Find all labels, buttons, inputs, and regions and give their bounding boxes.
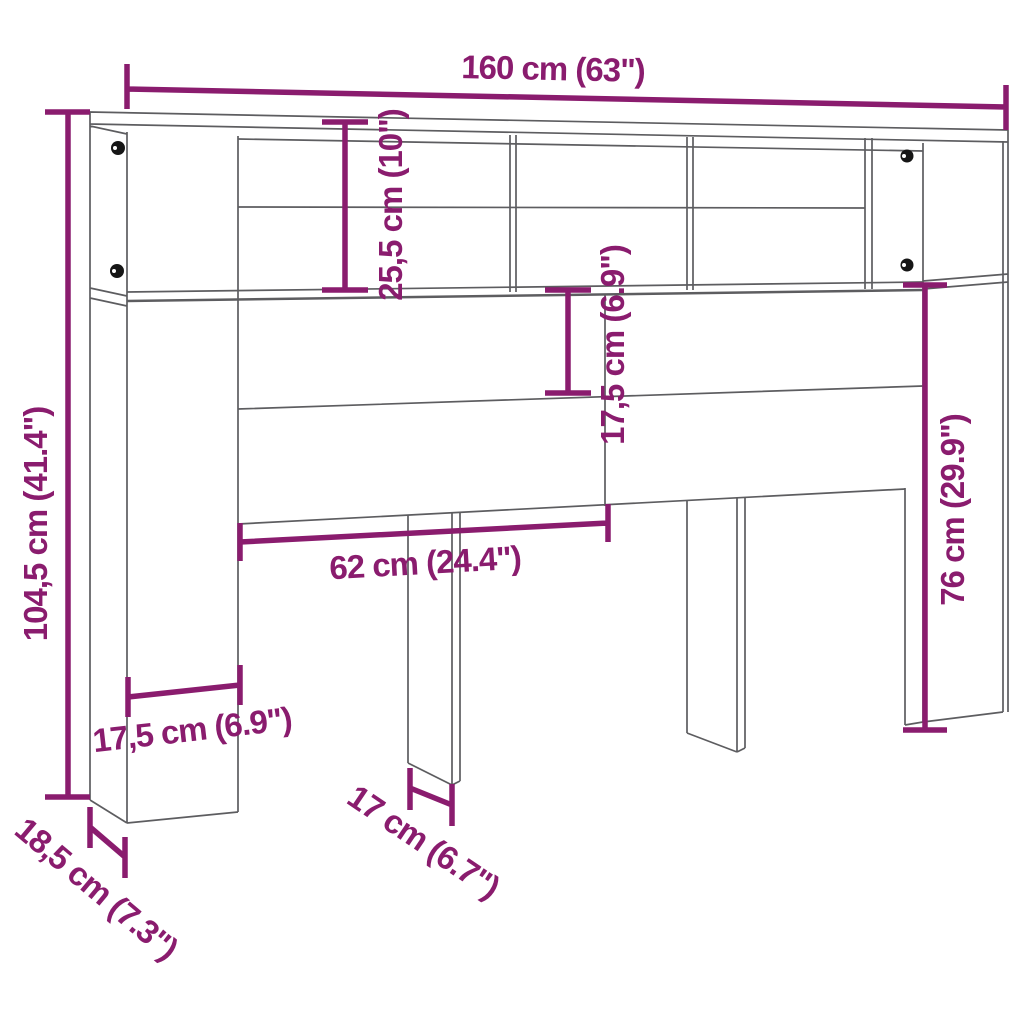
dim-top-compartment-height: 25,5 cm (10") bbox=[322, 109, 409, 301]
dimension-annotations: 160 cm (63") 104,5 cm (41.4") 25,5 cm (1… bbox=[8, 48, 1006, 967]
furniture-dimension-diagram: 160 cm (63") 104,5 cm (41.4") 25,5 cm (1… bbox=[0, 0, 1024, 1024]
back-panel bbox=[238, 295, 923, 524]
screw-highlight bbox=[113, 146, 117, 150]
screw-highlight bbox=[902, 263, 906, 267]
diagram-canvas: 160 cm (63") 104,5 cm (41.4") 25,5 cm (1… bbox=[0, 0, 1024, 1024]
dim-label-side-panel-height: 76 cm (29.9") bbox=[934, 414, 971, 606]
dim-label-total-width: 160 cm (63") bbox=[461, 48, 645, 89]
screw-highlight bbox=[902, 154, 906, 158]
dim-line-shelf-gap-height bbox=[545, 290, 591, 393]
dim-label-leg-width: 17 cm (6.7") bbox=[341, 777, 506, 905]
screw-icons bbox=[110, 141, 914, 278]
dim-side-panel-height: 76 cm (29.9") bbox=[903, 285, 971, 730]
screw-highlight bbox=[112, 269, 116, 273]
dim-pillar-width: 17,5 cm (6.9") bbox=[91, 665, 294, 759]
top-board bbox=[90, 112, 1008, 142]
shelf-bottom-edge bbox=[127, 290, 923, 301]
dim-leg-width: 17 cm (6.7") bbox=[341, 768, 506, 905]
dim-total-height: 104,5 cm (41.4") bbox=[17, 112, 90, 797]
right-middle-leg bbox=[687, 498, 745, 752]
dim-total-width: 160 cm (63") bbox=[127, 48, 1006, 130]
dim-line-top-compartment-height bbox=[322, 122, 368, 290]
dim-inner-width: 62 cm (24.4") bbox=[240, 504, 608, 586]
dim-shelf-gap-height: 17,5 cm (6.9") bbox=[545, 245, 631, 445]
dim-label-top-compartment-height: 25,5 cm (10") bbox=[372, 109, 409, 301]
compartment-interior bbox=[238, 139, 923, 208]
dim-label-pillar-width: 17,5 cm (6.9") bbox=[91, 700, 294, 759]
dim-label-inner-width: 62 cm (24.4") bbox=[328, 539, 521, 587]
compartment-dividers bbox=[510, 135, 872, 292]
dim-label-total-height: 104,5 cm (41.4") bbox=[17, 407, 54, 641]
dim-depth: 18,5 cm (7.3") bbox=[8, 807, 185, 967]
dim-label-shelf-gap-height: 17,5 cm (6.9") bbox=[594, 245, 631, 445]
